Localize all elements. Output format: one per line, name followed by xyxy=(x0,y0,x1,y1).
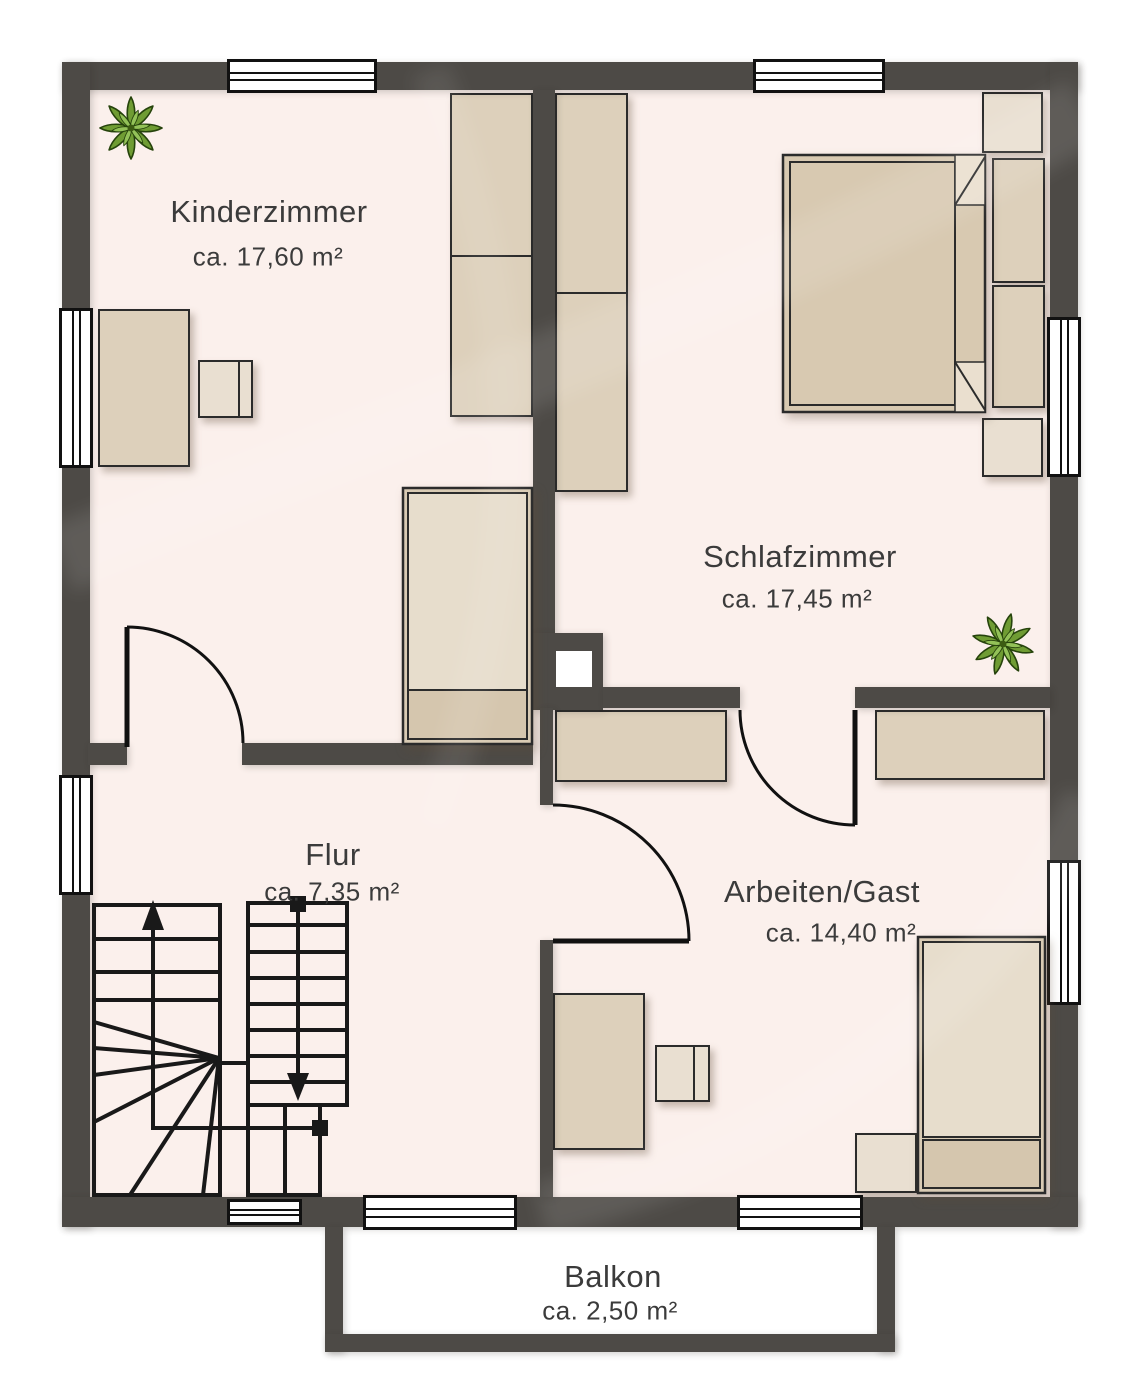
room-label-schlafzimmer: Schlafzimmer xyxy=(703,539,897,575)
wall-kinderzimmer-flur-left xyxy=(88,743,127,765)
window-schlafzimmer-top xyxy=(753,59,885,93)
chair-backrest xyxy=(693,1046,695,1101)
headboard-cabinet-lower xyxy=(992,285,1045,408)
room-label-flur: Flur xyxy=(305,837,360,873)
nightstand-arbeiten xyxy=(855,1133,917,1193)
balcony-wall-bottom xyxy=(325,1334,895,1352)
window-arbeiten-right xyxy=(1047,860,1081,1005)
wall-bottom xyxy=(62,1197,1078,1227)
room-label-balkon: Balkon xyxy=(564,1259,662,1295)
window-flur-left xyxy=(59,775,93,895)
wall-schlafzimmer-arbeiten-left xyxy=(603,687,740,708)
shaft xyxy=(556,651,592,687)
wall-flur-arbeiten-upper xyxy=(540,708,553,805)
room-area-arbeiten-gast: ca. 14,40 m² xyxy=(766,918,917,949)
sideboard-arbeiten-right xyxy=(875,710,1045,780)
wardrobe-divider xyxy=(556,292,627,294)
headboard-cabinet-upper xyxy=(992,158,1045,283)
room-area-flur: ca. 7,35 m² xyxy=(264,877,400,908)
window-kinderzimmer-top xyxy=(227,59,377,93)
wardrobe-kinderzimmer xyxy=(450,93,533,417)
window-schlafzimmer-right xyxy=(1047,317,1081,477)
wall-flur-arbeiten-lower xyxy=(540,940,553,1197)
wall-kinderzimmer-flur-right xyxy=(242,743,533,765)
room-area-kinderzimmer: ca. 17,60 m² xyxy=(193,242,344,273)
chair-kinderzimmer xyxy=(198,360,253,418)
wall-left xyxy=(62,62,90,1227)
window-flur-bottom xyxy=(227,1199,302,1225)
room-label-arbeiten-gast: Arbeiten/Gast xyxy=(724,874,920,910)
window-kinderzimmer-left xyxy=(59,308,93,468)
wall-kinderzimmer-schlafzimmer xyxy=(533,90,555,633)
room-label-kinderzimmer: Kinderzimmer xyxy=(170,194,367,230)
floor-plan: Kinderzimmer ca. 17,60 m² Schlafzimmer c… xyxy=(0,0,1143,1400)
room-area-balkon: ca. 2,50 m² xyxy=(542,1296,678,1327)
room-area-schlafzimmer: ca. 17,45 m² xyxy=(722,584,873,615)
wall-right xyxy=(1050,62,1078,1227)
balcony-door-window xyxy=(363,1195,517,1230)
desk-kinderzimmer xyxy=(98,309,190,467)
sideboard-arbeiten-left xyxy=(555,710,727,782)
wall-schlafzimmer-arbeiten-right xyxy=(855,687,1050,708)
chair-arbeiten xyxy=(655,1045,710,1102)
desk-arbeiten xyxy=(553,993,645,1150)
bedside-cabinet-bottom xyxy=(982,418,1043,477)
wardrobe-schlafzimmer xyxy=(555,93,628,492)
balcony-window xyxy=(737,1195,863,1230)
chair-backrest xyxy=(238,361,240,417)
wardrobe-divider xyxy=(451,255,532,257)
bedside-cabinet-top xyxy=(982,92,1043,153)
wall-top xyxy=(62,62,1078,90)
